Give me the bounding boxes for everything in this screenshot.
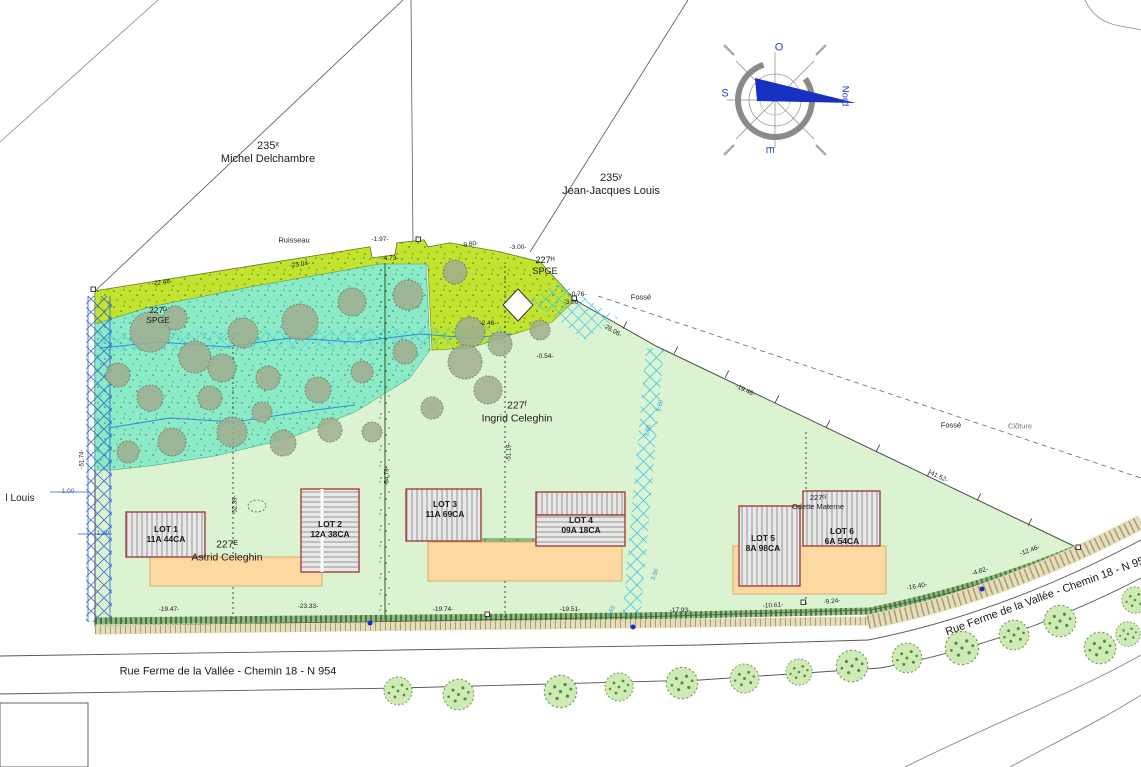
lot-4-building-upper — [536, 492, 625, 515]
lot-5-building — [739, 506, 800, 586]
terrace-lot3-4 — [428, 542, 622, 581]
lot-2-building — [301, 489, 359, 572]
compass-rose — [723, 45, 856, 155]
site-plan-canvas: { "canvas": {"width": 1141, "height": 76… — [0, 0, 1141, 767]
terrace-lot1-2 — [150, 557, 322, 586]
lot-4-building-lower — [536, 515, 625, 546]
lot-6-building — [803, 491, 880, 546]
lot-1-building — [126, 512, 205, 557]
site-plan-drawing — [0, 0, 1141, 767]
lot-3-building — [406, 489, 481, 541]
